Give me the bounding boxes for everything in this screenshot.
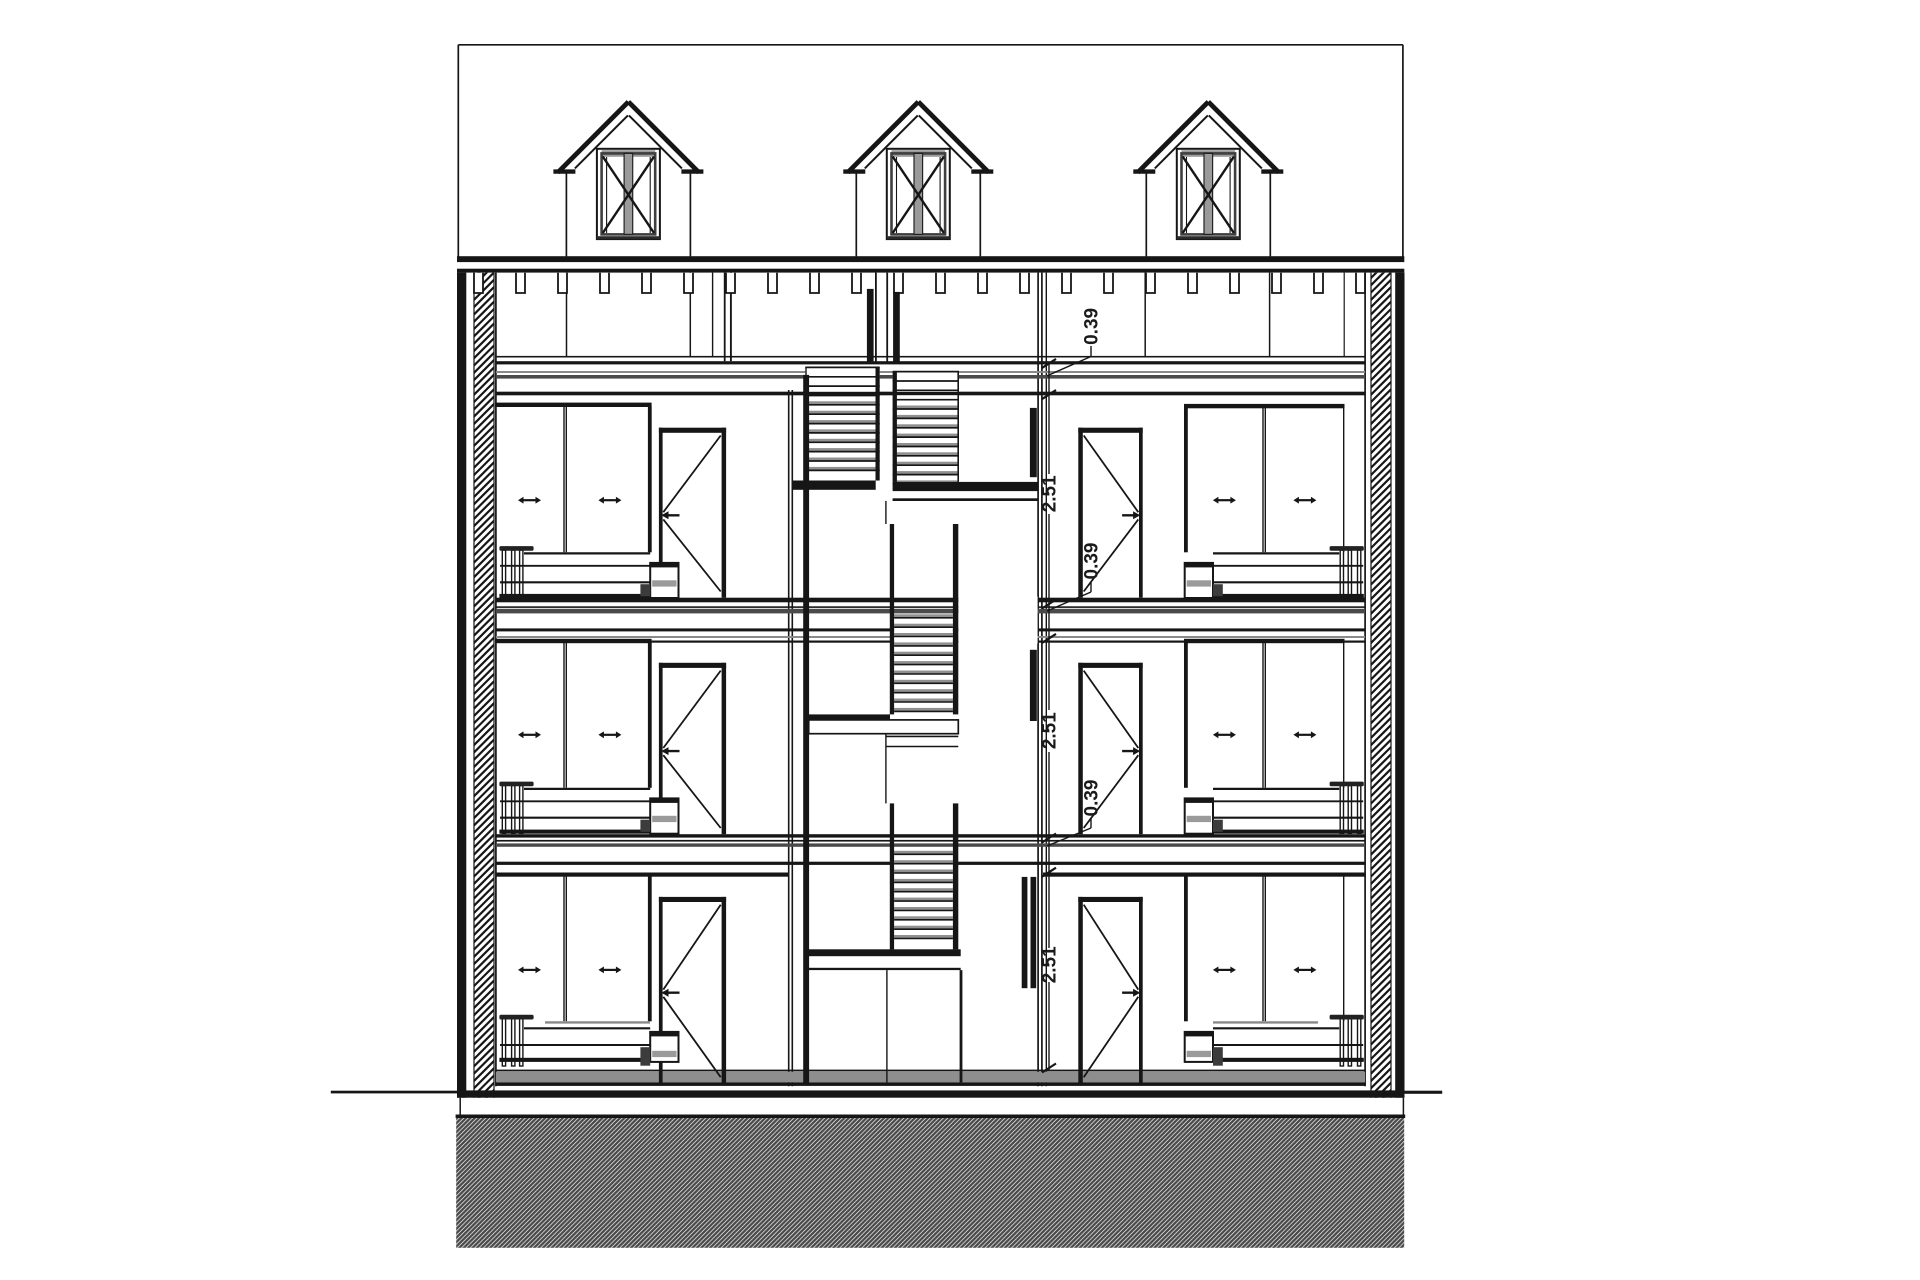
svg-text:0.39: 0.39 [1081, 308, 1102, 345]
svg-text:2.51: 2.51 [1039, 946, 1060, 983]
svg-text:2.51: 2.51 [1040, 475, 1061, 512]
svg-text:0.39: 0.39 [1082, 780, 1103, 817]
svg-text:2.51: 2.51 [1039, 712, 1060, 749]
svg-text:0.39: 0.39 [1082, 543, 1103, 580]
